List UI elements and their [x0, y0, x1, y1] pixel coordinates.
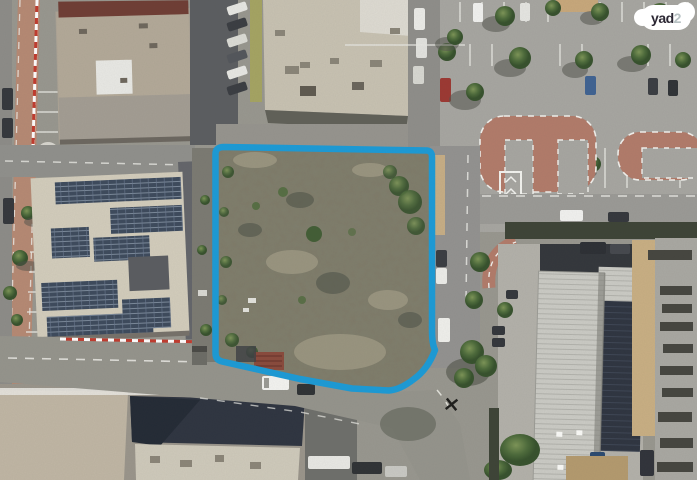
- yad2-logo-text: yad2: [651, 11, 681, 25]
- photo-grain: [0, 0, 697, 480]
- aerial-map-image: × yad2: [0, 0, 697, 480]
- satellite-scene: ×: [0, 0, 697, 480]
- yad2-logo-watermark: yad2: [641, 5, 691, 30]
